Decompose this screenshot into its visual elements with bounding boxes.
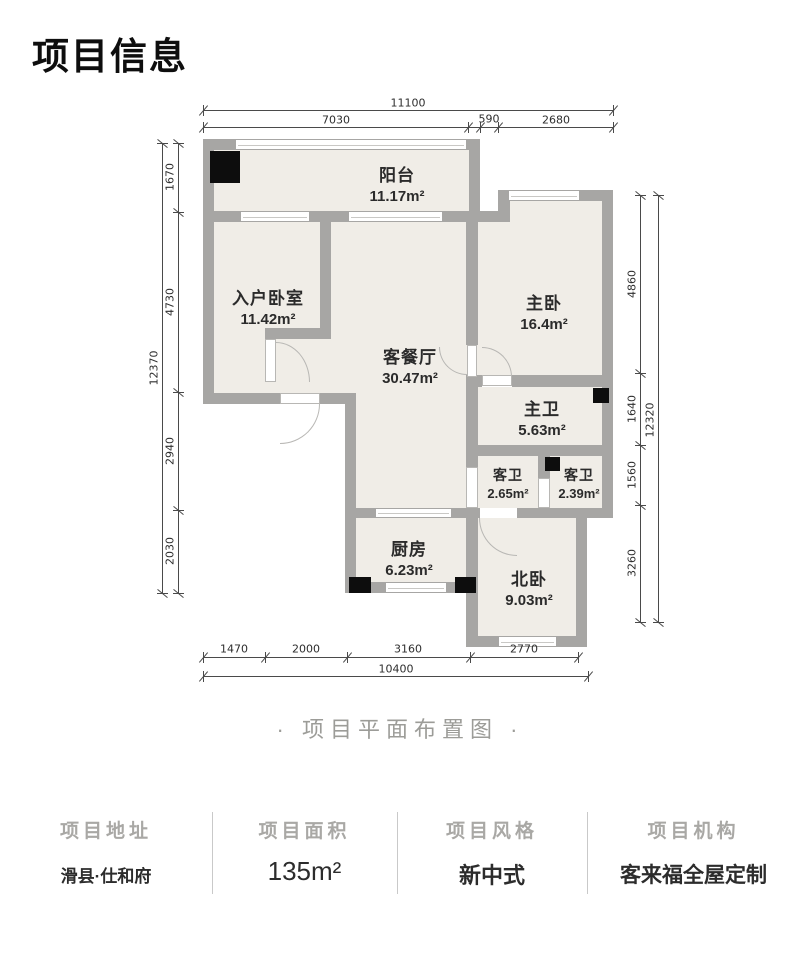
dim-label: 12320	[644, 403, 657, 438]
dim-line	[640, 195, 641, 622]
dim-tick	[613, 105, 614, 116]
wall	[576, 518, 587, 647]
room-label-entry-bedroom: 入户卧室11.42m²	[232, 284, 304, 328]
dim-tick	[173, 510, 184, 511]
master-bedroom-door-leaf	[467, 345, 477, 377]
window	[235, 139, 467, 150]
column-marker	[455, 577, 476, 593]
dim-label: 2000	[292, 643, 320, 656]
dim-tick	[468, 122, 469, 133]
dim-label: 11100	[391, 97, 426, 110]
dim-tick	[157, 143, 168, 144]
dim-label: 7030	[322, 114, 350, 127]
column-marker	[210, 151, 240, 183]
room-floor-balcony	[214, 150, 469, 211]
dim-tick	[588, 671, 589, 682]
dim-tick	[203, 671, 204, 682]
dim-tick	[173, 143, 184, 144]
guest-bath-2-door	[538, 478, 550, 508]
dim-label: 1670	[164, 163, 177, 191]
dim-tick	[470, 652, 471, 663]
info-label: 项目面积	[212, 816, 397, 843]
dim-tick	[653, 622, 664, 623]
dim-line	[203, 657, 578, 658]
window	[348, 211, 443, 222]
dim-tick	[203, 652, 204, 663]
dim-tick	[157, 593, 168, 594]
room-floor-master-bedroom-top	[510, 200, 602, 222]
dim-label: 2940	[164, 437, 177, 465]
dim-line	[658, 195, 659, 622]
dim-label: 2030	[164, 537, 177, 565]
wall	[517, 508, 613, 518]
dim-line	[178, 143, 179, 593]
dim-line	[203, 676, 588, 677]
room-label-master-bath: 主卫5.63m²	[518, 395, 566, 439]
dim-label: 10400	[379, 663, 414, 676]
dim-label: 3260	[626, 549, 639, 577]
info-col-address: 项目地址 滑县·仕和府	[0, 808, 212, 898]
dim-label: 4860	[626, 270, 639, 298]
dim-tick	[173, 593, 184, 594]
window	[508, 190, 580, 201]
column-marker	[349, 577, 371, 593]
window	[375, 508, 452, 518]
dim-label: 1640	[626, 395, 639, 423]
dim-tick	[173, 212, 184, 213]
guest-bath-1-door	[466, 467, 478, 508]
room-label-guest-bath-2: 客卫2.39m²	[558, 465, 599, 501]
dim-label: 2770	[510, 643, 538, 656]
dim-tick	[635, 195, 646, 196]
dim-tick	[203, 122, 204, 133]
dim-label: 1560	[626, 461, 639, 489]
floor-plan-page: 项目信息	[0, 0, 800, 961]
dim-label: 2680	[542, 114, 570, 127]
dim-tick	[635, 373, 646, 374]
dim-line	[203, 110, 613, 111]
wall	[466, 445, 613, 456]
info-label: 项目机构	[587, 816, 800, 843]
dim-label: 590	[479, 113, 500, 126]
room-label-guest-bath-1: 客卫2.65m²	[487, 465, 528, 501]
dim-label: 1470	[220, 643, 248, 656]
plan-caption: · 项目平面布置图 ·	[277, 712, 524, 744]
room-floor-living-corridor	[356, 393, 466, 508]
info-col-style: 项目风格 新中式	[397, 808, 587, 898]
wall	[203, 393, 280, 404]
window	[240, 211, 310, 222]
info-col-area: 项目面积 135m²	[212, 808, 397, 898]
room-label-kitchen: 厨房6.23m²	[385, 535, 433, 579]
dim-tick	[203, 105, 204, 116]
room-label-balcony: 阳台11.17m²	[369, 161, 424, 205]
entry-door-threshold	[280, 393, 320, 404]
dim-tick	[613, 122, 614, 133]
wall	[602, 190, 613, 518]
dim-tick	[578, 652, 579, 663]
room-label-master-bedroom: 主卧16.4m²	[520, 289, 568, 333]
dim-label: 12370	[148, 351, 161, 386]
wall	[345, 393, 356, 518]
info-value: 新中式	[397, 858, 587, 890]
dim-tick	[653, 195, 664, 196]
dim-tick	[347, 652, 348, 663]
column-marker	[593, 388, 609, 403]
dim-line	[162, 143, 163, 593]
dim-label: 3160	[394, 643, 422, 656]
info-value: 滑县·仕和府	[0, 862, 212, 887]
project-info-bar: 项目地址 滑县·仕和府 项目面积 135m² 项目风格 新中式 项目机构 客来福…	[0, 808, 800, 908]
wall	[466, 222, 478, 345]
entry-door-arc	[280, 404, 320, 444]
info-col-agency: 项目机构 客来福全屋定制	[587, 808, 800, 898]
info-label: 项目风格	[397, 816, 587, 843]
window	[385, 582, 447, 593]
wall	[320, 222, 331, 339]
dim-tick	[265, 652, 266, 663]
dim-tick	[635, 445, 646, 446]
room-label-living-dining: 客餐厅30.47m²	[382, 343, 438, 387]
page-title: 项目信息	[32, 26, 188, 80]
dim-tick	[635, 505, 646, 506]
info-label: 项目地址	[0, 816, 212, 843]
dim-label: 4730	[164, 288, 177, 316]
entry-bedroom-door-leaf	[265, 339, 276, 382]
wall	[265, 328, 331, 339]
wall	[512, 375, 613, 387]
dim-line	[203, 127, 613, 128]
info-value: 135m²	[212, 856, 397, 887]
room-label-north-bedroom: 北卧9.03m²	[505, 565, 553, 609]
info-value: 客来福全屋定制	[587, 859, 800, 889]
dim-tick	[635, 622, 646, 623]
dim-tick	[173, 392, 184, 393]
wall	[469, 139, 480, 222]
